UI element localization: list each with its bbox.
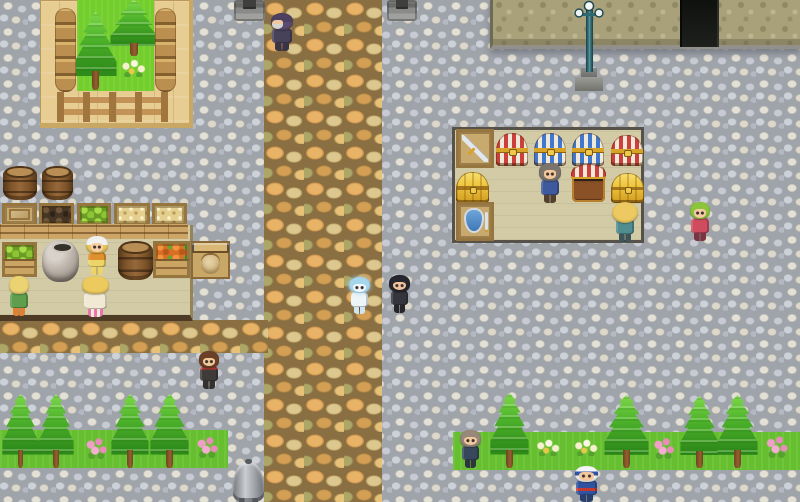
npc-gray-haired-man-body [462, 445, 480, 460]
flowers-pink-2 [195, 436, 219, 458]
shop-chest-blue-1[interactable] [534, 133, 566, 166]
flowers-white-1 [534, 439, 561, 456]
building-wall [490, 0, 800, 49]
npc-green-haired-girl-body [691, 218, 708, 234]
npc-shop-owner-body [541, 179, 559, 195]
npc-customer-woman-body [84, 292, 107, 308]
npc-maid-shopkeeper-legs [91, 266, 103, 275]
npc-maid-shopkeeper-body [88, 252, 106, 268]
npc-soldier-legs [580, 494, 594, 502]
market-crate-wheat-2[interactable] [152, 203, 187, 226]
npc-afro-customer[interactable] [611, 202, 639, 242]
market-barrel-2 [42, 168, 73, 200]
npc-red-scarf-man-head [199, 351, 219, 368]
pine-tree-se-4 [717, 395, 758, 468]
garden-log-edge-left [55, 8, 76, 92]
npc-green-haired-girl-head [690, 202, 710, 219]
garden-log-edge-right [155, 8, 176, 92]
npc-soldier[interactable] [571, 466, 602, 502]
flowers-pink-4 [764, 435, 789, 458]
market-sack-stand[interactable] [191, 241, 230, 279]
npc-red-scarf-man-legs [203, 380, 214, 389]
npc-customer-woman-legs [88, 308, 103, 317]
npc-spirit-legs [354, 305, 366, 314]
npc-customer-woman[interactable] [78, 276, 113, 317]
garden-fence [57, 92, 168, 122]
shop-chest-open-red[interactable] [572, 167, 605, 202]
garden-pine-tree-front [74, 12, 117, 90]
npc-blonde-kid-head [9, 276, 29, 294]
pine-tree-sw-2 [38, 394, 74, 468]
garden-flowers [119, 59, 147, 77]
npc-blonde-kid[interactable] [6, 276, 32, 316]
pine-tree-sw-1 [2, 394, 39, 468]
lamppost [570, 0, 608, 91]
market-crate-apples[interactable] [77, 203, 111, 226]
stone-pedestal-left [234, 0, 265, 21]
npc-gray-haired-man-legs [465, 459, 477, 468]
shop-chest-blue-2[interactable] [572, 133, 604, 166]
npc-green-haired-girl[interactable] [687, 202, 713, 241]
npc-soldier-body [576, 480, 596, 494]
npc-afro-customer-legs [619, 233, 631, 242]
npc-old-man[interactable] [267, 13, 297, 51]
npc-old-man-legs [275, 42, 288, 51]
npc-blonde-kid-body [10, 292, 27, 308]
game-viewport[interactable] [0, 0, 800, 502]
flowers-pink-3 [652, 437, 675, 459]
npc-afro-customer-head [612, 202, 639, 223]
flowers-pink-1 [84, 437, 108, 459]
building-doorway[interactable] [680, 0, 719, 47]
npc-shop-owner-legs [544, 194, 556, 203]
shop-chest-gold-2[interactable] [611, 173, 644, 203]
npc-dark-haired-man[interactable] [386, 275, 413, 313]
npc-old-man-head [271, 13, 294, 30]
market-crate-carrots[interactable] [153, 241, 190, 278]
npc-gray-haired-man-head [460, 430, 481, 447]
npc-shop-owner-head [539, 163, 560, 181]
npc-shop-owner[interactable] [536, 163, 564, 203]
npc-soldier-head [575, 466, 599, 482]
pine-tree-sw-3 [111, 394, 149, 468]
pine-tree-se-2 [604, 395, 649, 468]
market-barrel-3 [118, 243, 153, 280]
shop-chest-red-2[interactable] [611, 135, 643, 166]
npc-dark-haired-man-head [389, 275, 410, 292]
npc-green-haired-girl-legs [694, 232, 705, 241]
west-road [0, 320, 268, 353]
npc-spirit-head [349, 277, 370, 293]
shop-crate-sword[interactable] [456, 129, 494, 168]
stone-pedestal-right [387, 0, 417, 21]
shop-crate-shield[interactable] [456, 202, 494, 241]
npc-maid-shopkeeper-head [86, 236, 107, 253]
npc-blonde-kid-legs [13, 307, 24, 316]
market-crate-apples-floor[interactable] [2, 242, 37, 277]
flowers-white-2 [572, 439, 599, 456]
pine-tree-se-3 [680, 396, 719, 468]
garden-pine-tree-back [110, 0, 158, 56]
market-crate-closed[interactable] [2, 203, 37, 226]
npc-red-scarf-man-body [200, 366, 217, 381]
npc-red-scarf-man[interactable] [196, 351, 222, 389]
main-path [264, 0, 382, 502]
pine-tree-se-1 [490, 393, 529, 468]
npc-customer-woman-head [82, 276, 109, 294]
npc-spirit-body [351, 292, 369, 307]
market-crate-dark-goods[interactable] [39, 203, 74, 226]
npc-gray-haired-man[interactable] [457, 430, 484, 468]
market-ceramic-pot [42, 240, 79, 282]
npc-spirit[interactable] [346, 277, 373, 314]
shop-chest-gold-1[interactable] [456, 172, 489, 203]
armor-statue[interactable] [233, 461, 264, 502]
npc-old-man-body [272, 28, 292, 43]
market-crate-wheat-1[interactable] [114, 203, 150, 226]
npc-maid-shopkeeper[interactable] [83, 236, 111, 275]
market-barrel-1 [3, 168, 37, 200]
pine-tree-sw-4 [150, 394, 189, 468]
shop-chest-red-1[interactable] [496, 133, 528, 166]
npc-dark-haired-man-body [391, 290, 409, 305]
npc-dark-haired-man-legs [394, 304, 406, 313]
